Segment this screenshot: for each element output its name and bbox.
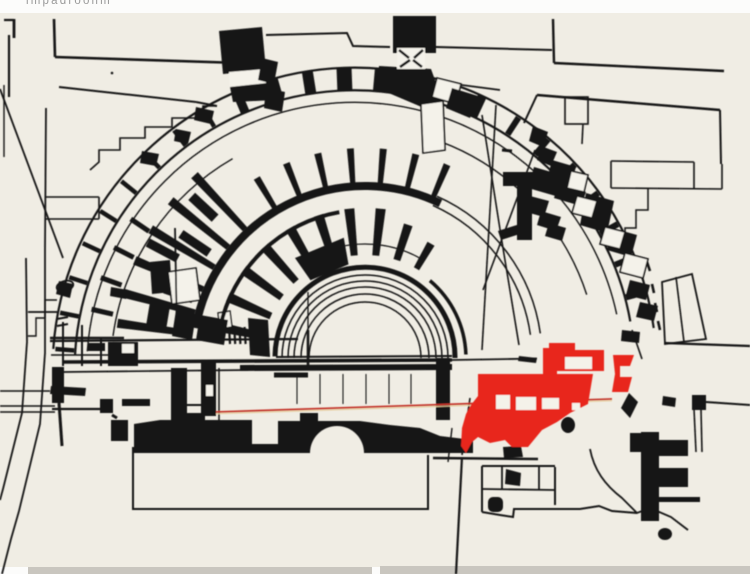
svg-text:impadroonm: impadroonm [26,0,112,7]
